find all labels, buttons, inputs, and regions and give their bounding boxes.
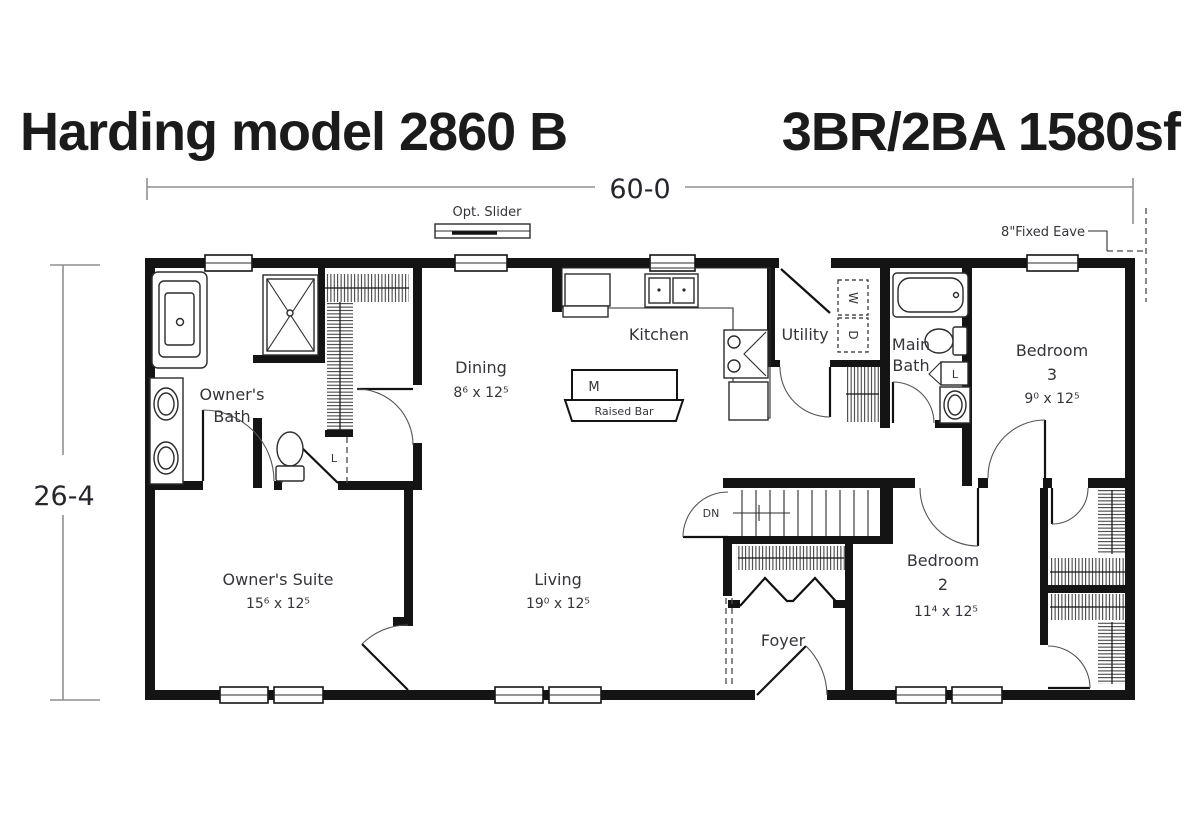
island-microwave-label: M bbox=[588, 380, 599, 395]
living-label: Living 19⁰ x 12⁵ bbox=[526, 570, 590, 612]
svg-text:9⁰ x 12⁵: 9⁰ x 12⁵ bbox=[1024, 391, 1079, 407]
svg-text:8⁶ x 12⁵: 8⁶ x 12⁵ bbox=[453, 385, 508, 401]
window bbox=[549, 687, 601, 703]
main-bath-toilet bbox=[925, 327, 967, 355]
svg-text:11⁴ x 12⁵: 11⁴ x 12⁵ bbox=[914, 604, 978, 620]
opt-slider-label: Opt. Slider bbox=[453, 205, 523, 220]
dining-label: Dining 8⁶ x 12⁵ bbox=[453, 358, 508, 401]
shower bbox=[263, 275, 318, 355]
svg-text:Bath: Bath bbox=[892, 356, 929, 375]
foyer-label: Foyer bbox=[761, 631, 806, 650]
kitchen-label: Kitchen bbox=[629, 325, 689, 344]
utility-label: Utility bbox=[781, 325, 828, 344]
window bbox=[455, 255, 507, 271]
depth-dimension: 26-4 bbox=[33, 265, 100, 700]
svg-text:15⁶ x 12⁵: 15⁶ x 12⁵ bbox=[246, 596, 310, 612]
svg-text:19⁰ x 12⁵: 19⁰ x 12⁵ bbox=[526, 596, 590, 612]
bedroom3-closet-door bbox=[1052, 488, 1088, 524]
kitchen-island: M Raised Bar bbox=[565, 370, 683, 421]
width-dimension: 60-0 bbox=[147, 174, 1133, 224]
svg-text:Dining: Dining bbox=[455, 358, 507, 377]
owners-vanity bbox=[150, 378, 183, 484]
linen-label: L bbox=[952, 368, 959, 381]
svg-text:Owner's: Owner's bbox=[200, 385, 265, 404]
owners-tub bbox=[152, 272, 207, 368]
svg-text:Main: Main bbox=[892, 335, 930, 354]
fixed-eave-leader bbox=[1088, 231, 1107, 251]
main-bath-linen: L bbox=[929, 362, 968, 385]
rear-door-opening bbox=[779, 256, 831, 269]
svg-text:Bedroom: Bedroom bbox=[907, 551, 979, 570]
wic-linen-label: L bbox=[331, 452, 338, 465]
owners-suite-label: Owner's Suite 15⁶ x 12⁵ bbox=[223, 570, 334, 612]
window bbox=[220, 687, 268, 703]
depth-dimension-label: 26-4 bbox=[33, 481, 94, 512]
window bbox=[274, 687, 323, 703]
bedroom2-closet-door bbox=[1048, 646, 1090, 688]
range-stove bbox=[724, 330, 768, 378]
bedroom2-label: Bedroom 2 11⁴ x 12⁵ bbox=[907, 551, 979, 620]
bedroom3-door bbox=[988, 420, 1045, 478]
utility-rear-door bbox=[781, 269, 830, 313]
window bbox=[896, 687, 946, 703]
main-bath-label: Main Bath bbox=[892, 335, 930, 375]
owners-toilet bbox=[276, 432, 304, 481]
svg-text:Owner's Suite: Owner's Suite bbox=[223, 570, 334, 589]
svg-text:Living: Living bbox=[534, 570, 582, 589]
main-bath-sink bbox=[940, 387, 970, 423]
stairs-down-label: DN bbox=[703, 507, 720, 520]
bedroom2-door bbox=[920, 488, 978, 546]
fixed-eave-label: 8"Fixed Eave bbox=[1001, 225, 1085, 240]
kitchen-sink bbox=[645, 274, 698, 307]
width-dimension-label: 60-0 bbox=[609, 174, 670, 205]
washer-label: W bbox=[846, 292, 860, 304]
refrigerator bbox=[729, 382, 768, 420]
front-entry-door bbox=[757, 646, 827, 695]
window bbox=[495, 687, 543, 703]
foyer-closet-bifold bbox=[740, 578, 840, 606]
floor-plan-drawing: Harding model 2860 B 3BR/2BA 1580sf 60-0… bbox=[0, 0, 1200, 818]
washer-dryer: W D bbox=[838, 280, 868, 352]
optional-slider-note: Opt. Slider bbox=[435, 205, 530, 238]
svg-text:3: 3 bbox=[1047, 365, 1057, 384]
floor-plan-sheet: Harding model 2860 B 3BR/2BA 1580sf 60-0… bbox=[0, 0, 1200, 818]
window bbox=[1027, 255, 1078, 271]
front-door-opening bbox=[755, 688, 827, 701]
svg-text:2: 2 bbox=[938, 575, 948, 594]
svg-text:Bedroom: Bedroom bbox=[1016, 341, 1088, 360]
window bbox=[205, 255, 252, 271]
bedroom3-label: Bedroom 3 9⁰ x 12⁵ bbox=[1016, 341, 1088, 407]
dryer-label: D bbox=[846, 330, 860, 339]
bath-hall-door bbox=[357, 389, 413, 445]
plan-title-model: Harding model 2860 B bbox=[20, 102, 567, 162]
window bbox=[650, 255, 695, 271]
svg-text:Bath: Bath bbox=[213, 407, 250, 426]
window bbox=[952, 687, 1002, 703]
plan-title-specs: 3BR/2BA 1580sf bbox=[782, 102, 1182, 162]
staircase: DN bbox=[703, 490, 868, 536]
main-bath-door bbox=[893, 382, 934, 423]
utility-hall-door bbox=[780, 367, 830, 417]
raised-bar-label: Raised Bar bbox=[595, 405, 654, 418]
owners-suite-door bbox=[362, 625, 408, 690]
main-bath-tub bbox=[893, 273, 968, 317]
